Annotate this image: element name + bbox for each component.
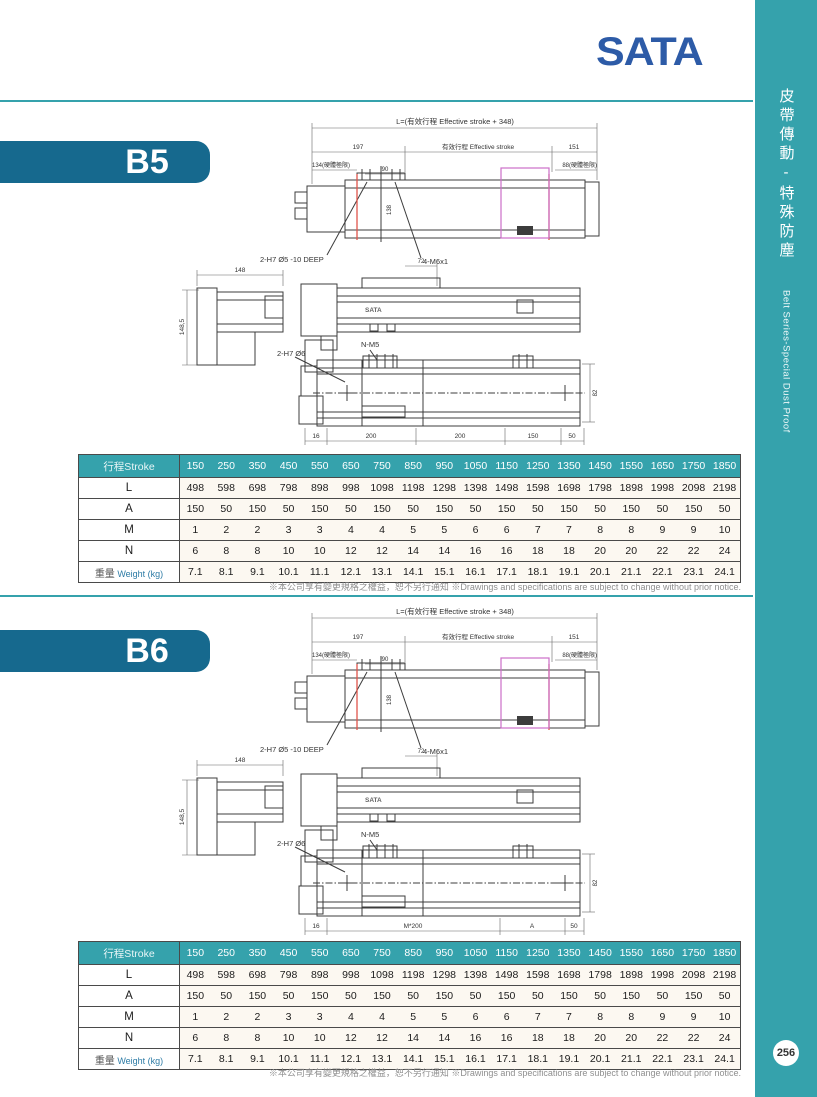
thread-label: 4-M6x1 — [423, 747, 448, 756]
technical-drawing-b6: L=(有效行程 Effective stroke + 348) 197 有效行程… — [165, 600, 635, 945]
table-cell: 150 — [616, 499, 647, 520]
top-divider — [0, 100, 753, 102]
table-cell: 150 — [678, 986, 709, 1007]
table-cell: 2198 — [709, 478, 740, 499]
table-cell: 2098 — [678, 965, 709, 986]
table-cell: 5 — [429, 1007, 460, 1028]
dim-197: 197 — [353, 634, 364, 641]
holes-top-label: 2-H7 Ø5 -10 DEEP — [260, 255, 324, 264]
body-logo-text: SATA — [365, 307, 382, 314]
table-cell: 16 — [491, 541, 522, 562]
table-cell: 150 — [180, 499, 211, 520]
table-cell: 498 — [180, 965, 211, 986]
table-cell: 50 — [335, 499, 366, 520]
table-cell: 6 — [460, 1007, 491, 1028]
disclaimer-note-b5: ※本公司享有變更規格之權益，恕不另行通知 ※Drawings and speci… — [78, 580, 741, 593]
table-cell: 1750 — [678, 942, 709, 965]
table-cell: 8 — [585, 520, 616, 541]
bottom-view — [299, 354, 585, 426]
dim-151: 151 — [569, 634, 580, 641]
table-cell: 1798 — [585, 478, 616, 499]
table-cell: 20 — [616, 1028, 647, 1049]
table-cell: 150 — [180, 986, 211, 1007]
technical-drawing-b5: L=(有效行程 Effective stroke + 348) 197 有效行程… — [165, 110, 635, 455]
dim-148: 148 — [235, 757, 246, 764]
table-cell: 18 — [553, 1028, 584, 1049]
table-cell: 1898 — [616, 965, 647, 986]
end-view-dims: 148 148,5 — [179, 757, 283, 855]
table-cell: 3 — [273, 1007, 304, 1028]
table-cell: 6 — [491, 1007, 522, 1028]
table-cell: 1150 — [491, 942, 522, 965]
table-cell: 22 — [647, 1028, 678, 1049]
table-cell: 16 — [460, 1028, 491, 1049]
table-cell: 24 — [709, 541, 740, 562]
table-cell: 4 — [366, 1007, 397, 1028]
table-cell: 6 — [180, 1028, 211, 1049]
table-cell: 850 — [398, 455, 429, 478]
dim-total-label: L=(有效行程 Effective stroke + 348) — [396, 606, 514, 616]
table-cell: 50 — [522, 499, 553, 520]
table-cell: 1250 — [522, 942, 553, 965]
dim-148: 148 — [235, 267, 246, 274]
end-view-dims: 148 148,5 — [179, 267, 283, 365]
section-divider — [0, 595, 753, 597]
table-cell: 950 — [429, 942, 460, 965]
table-cell: 14 — [398, 1028, 429, 1049]
table-cell: 20 — [585, 541, 616, 562]
spec-table-b6: 行程Stroke15025035045055065075085095010501… — [78, 941, 741, 1070]
table-cell: 22 — [678, 541, 709, 562]
table-cell: 9 — [647, 520, 678, 541]
table-cell: 10 — [273, 1028, 304, 1049]
table-cell: 6 — [460, 520, 491, 541]
table-cell: 2098 — [678, 478, 709, 499]
table-cell: 12 — [335, 541, 366, 562]
table-cell: 898 — [304, 965, 335, 986]
table-cell: 50 — [398, 986, 429, 1007]
dim-72: 72 — [418, 749, 425, 755]
table-cell: 1198 — [398, 965, 429, 986]
table-cell: 5 — [398, 520, 429, 541]
table-cell: 1 — [180, 520, 211, 541]
table-cell: 4 — [335, 520, 366, 541]
table-cell: 50 — [522, 986, 553, 1007]
table-cell: 250 — [211, 455, 242, 478]
thread-label: 4-M6x1 — [423, 257, 448, 266]
table-row: A150501505015050150501505015050150501505… — [79, 986, 741, 1007]
dim-138: 138 — [387, 204, 393, 215]
table-cell: A — [79, 499, 180, 520]
table-cell: 798 — [273, 965, 304, 986]
table-row: N688101012121414161618182020222224 — [79, 1028, 741, 1049]
table-cell: 150 — [491, 499, 522, 520]
table-cell: 10 — [709, 1007, 740, 1028]
table-cell: 1398 — [460, 965, 491, 986]
table-cell: 12 — [366, 541, 397, 562]
table-cell: 1050 — [460, 455, 491, 478]
table-cell: N — [79, 541, 180, 562]
table-cell: 50 — [585, 986, 616, 1007]
table-cell: 1050 — [460, 942, 491, 965]
bottom-dim-3: 50 — [570, 923, 578, 930]
dimension-lines: L=(有效行程 Effective stroke + 348) 197 有效行程… — [312, 116, 597, 215]
table-cell: 9 — [678, 520, 709, 541]
table-cell: 50 — [211, 986, 242, 1007]
table-cell: N — [79, 1028, 180, 1049]
table-cell: 1598 — [522, 478, 553, 499]
table-cell: 50 — [709, 499, 740, 520]
table-cell: 50 — [460, 986, 491, 1007]
table-cell: 8 — [211, 1028, 242, 1049]
table-cell: 150 — [491, 986, 522, 1007]
table-cell: 10 — [304, 1028, 335, 1049]
table-cell: 1850 — [709, 455, 740, 478]
table-cell: 9 — [678, 1007, 709, 1028]
bottom-view — [299, 844, 585, 916]
end-view — [197, 288, 283, 365]
table-cell: 698 — [242, 965, 273, 986]
table-cell: 1250 — [522, 455, 553, 478]
table-cell: 9 — [647, 1007, 678, 1028]
table-cell: 3 — [273, 520, 304, 541]
table-cell: 1298 — [429, 478, 460, 499]
table-cell: A — [79, 986, 180, 1007]
table-cell: 850 — [398, 942, 429, 965]
table-cell: 7 — [522, 520, 553, 541]
table-cell: 150 — [304, 499, 335, 520]
table-cell: 8 — [211, 541, 242, 562]
table-cell: 650 — [335, 942, 366, 965]
table-cell: 998 — [335, 965, 366, 986]
table-cell: 450 — [273, 455, 304, 478]
table-cell: 598 — [211, 478, 242, 499]
table-cell: 22 — [647, 541, 678, 562]
table-cell: 50 — [398, 499, 429, 520]
table-cell: 1198 — [398, 478, 429, 499]
table-cell: 1698 — [553, 478, 584, 499]
dim-82: 82 — [593, 389, 599, 396]
dim-134: 134(硬體極限) — [312, 651, 350, 659]
table-cell: 1298 — [429, 965, 460, 986]
sidebar-title-english: Belt Series-Special Dust Proof — [781, 290, 792, 433]
table-cell: 1350 — [553, 455, 584, 478]
table-cell: 22 — [678, 1028, 709, 1049]
table-cell: 行程Stroke — [79, 455, 180, 478]
table-cell: 1450 — [585, 942, 616, 965]
dim-90: 90 — [382, 167, 389, 173]
table-cell: 150 — [180, 942, 211, 965]
table-cell: 2 — [242, 1007, 273, 1028]
table-cell: 14 — [398, 541, 429, 562]
table-cell: 750 — [366, 455, 397, 478]
table-cell: 150 — [429, 499, 460, 520]
table-cell: 1398 — [460, 478, 491, 499]
dim-148-5: 148,5 — [179, 318, 186, 335]
table-cell: 5 — [429, 520, 460, 541]
table-cell: 1650 — [647, 942, 678, 965]
table-cell: 8 — [616, 520, 647, 541]
table-cell: 10 — [304, 541, 335, 562]
table-cell: 1998 — [647, 965, 678, 986]
table-cell: M — [79, 520, 180, 541]
dim-197: 197 — [353, 144, 364, 151]
table-cell: 150 — [366, 499, 397, 520]
dimension-lines: L=(有效行程 Effective stroke + 348) 197 有效行程… — [312, 606, 597, 705]
side-view — [295, 278, 580, 382]
table-cell: 150 — [429, 986, 460, 1007]
table-cell: 1 — [180, 1007, 211, 1028]
bottom-dim-4: 50 — [568, 433, 576, 440]
dim-151: 151 — [569, 144, 580, 151]
table-cell: 150 — [304, 986, 335, 1007]
table-cell: 1498 — [491, 965, 522, 986]
table-cell: 998 — [335, 478, 366, 499]
table-cell: 450 — [273, 942, 304, 965]
table-cell: 750 — [366, 942, 397, 965]
dim-88: 88(硬體極限) — [562, 651, 597, 659]
table-cell: 598 — [211, 965, 242, 986]
table-cell: 798 — [273, 478, 304, 499]
sata-logo: SATA — [596, 28, 716, 76]
page-number-badge: 256 — [773, 1040, 799, 1066]
table-cell: 3 — [304, 520, 335, 541]
holes-top-label: 2-H7 Ø5 -10 DEEP — [260, 745, 324, 754]
table-cell: 1550 — [616, 942, 647, 965]
table-row: L498598698798898998109811981298139814981… — [79, 478, 741, 499]
table-cell: 20 — [585, 1028, 616, 1049]
table-cell: 550 — [304, 455, 335, 478]
table-cell: 4 — [366, 520, 397, 541]
table-cell: 20 — [616, 541, 647, 562]
table-cell: 350 — [242, 455, 273, 478]
dim-total-label: L=(有效行程 Effective stroke + 348) — [396, 116, 514, 126]
table-cell: 50 — [647, 499, 678, 520]
table-cell: 18 — [522, 1028, 553, 1049]
table-cell: 350 — [242, 942, 273, 965]
table-cell: 150 — [616, 986, 647, 1007]
body-logo-text: SATA — [365, 797, 382, 804]
table-cell: 6 — [180, 541, 211, 562]
end-view — [197, 778, 283, 855]
dim-148-5: 148,5 — [179, 808, 186, 825]
table-cell: 18 — [522, 541, 553, 562]
bottom-dim-0: 16 — [312, 433, 320, 440]
table-row: A150501505015050150501505015050150501505… — [79, 499, 741, 520]
table-cell: 50 — [335, 986, 366, 1007]
table-cell: 1650 — [647, 455, 678, 478]
table-cell: 1698 — [553, 965, 584, 986]
table-cell: 250 — [211, 942, 242, 965]
table-cell: 1998 — [647, 478, 678, 499]
bottom-dim-1: 200 — [366, 433, 377, 440]
table-row: 行程Stroke15025035045055065075085095010501… — [79, 942, 741, 965]
table-cell: 1598 — [522, 965, 553, 986]
table-row: M1223344556677889910 — [79, 520, 741, 541]
holes-bottom-label: 2-H7 Ø6 — [277, 839, 305, 848]
table-cell: 898 — [304, 478, 335, 499]
bottom-dim-2: A — [530, 923, 535, 930]
table-cell: 8 — [242, 541, 273, 562]
table-cell: 1850 — [709, 942, 740, 965]
table-cell: 950 — [429, 455, 460, 478]
table-cell: 1150 — [491, 455, 522, 478]
table-cell: 7 — [522, 1007, 553, 1028]
table-cell: 50 — [585, 499, 616, 520]
table-cell: 14 — [429, 1028, 460, 1049]
bottom-dim-3: 150 — [528, 433, 539, 440]
table-cell: 8 — [585, 1007, 616, 1028]
dim-90: 90 — [382, 657, 389, 663]
table-cell: 50 — [647, 986, 678, 1007]
table-cell: 1498 — [491, 478, 522, 499]
table-cell: 2 — [211, 520, 242, 541]
table-cell: 5 — [398, 1007, 429, 1028]
table-cell: 10 — [273, 541, 304, 562]
table-cell: 2 — [211, 1007, 242, 1028]
table-cell: 150 — [553, 986, 584, 1007]
table-cell: 1750 — [678, 455, 709, 478]
table-cell: 3 — [304, 1007, 335, 1028]
table-cell: 1098 — [366, 478, 397, 499]
nm5-label: N-M5 — [361, 830, 379, 839]
table-cell: 10 — [709, 520, 740, 541]
side-view — [295, 768, 580, 872]
table-cell: 1350 — [553, 942, 584, 965]
table-cell: 150 — [242, 499, 273, 520]
table-cell: 行程Stroke — [79, 942, 180, 965]
spec-table-b5: 行程Stroke15025035045055065075085095010501… — [78, 454, 741, 583]
table-cell: 8 — [616, 1007, 647, 1028]
table-cell: 650 — [335, 455, 366, 478]
table-cell: 698 — [242, 478, 273, 499]
table-cell: 150 — [366, 986, 397, 1007]
holes-bottom-label: 2-H7 Ø6 — [277, 349, 305, 358]
dim-72: 72 — [418, 259, 425, 265]
table-cell: 6 — [491, 520, 522, 541]
catalog-page: SATA B5 B6 L=(有效行程 Effective stroke + 34… — [0, 0, 817, 1097]
table-cell: 14 — [429, 541, 460, 562]
nm5-label: N-M5 — [361, 340, 379, 349]
table-row: 行程Stroke15025035045055065075085095010501… — [79, 455, 741, 478]
bottom-view-dims: 82 16 M*200 A 50 — [305, 854, 599, 935]
disclaimer-note-b6: ※本公司享有變更規格之權益，恕不另行通知 ※Drawings and speci… — [78, 1066, 741, 1079]
table-cell: L — [79, 478, 180, 499]
table-cell: 1798 — [585, 965, 616, 986]
dim-82: 82 — [593, 879, 599, 886]
dim-88: 88(硬體極限) — [562, 161, 597, 169]
table-cell: 550 — [304, 942, 335, 965]
table-cell: 12 — [335, 1028, 366, 1049]
table-row: N688101012121414161618182020222224 — [79, 541, 741, 562]
table-cell: 50 — [273, 986, 304, 1007]
bottom-dim-1: M*200 — [404, 923, 423, 930]
table-cell: 150 — [553, 499, 584, 520]
table-cell: 7 — [553, 1007, 584, 1028]
table-row: M1223344556677889910 — [79, 1007, 741, 1028]
table-cell: 1898 — [616, 478, 647, 499]
bottom-dim-2: 200 — [455, 433, 466, 440]
table-cell: 2198 — [709, 965, 740, 986]
category-sidebar: 皮帶傳動-特殊防塵 Belt Series-Special Dust Proof… — [755, 0, 817, 1097]
table-cell: 16 — [491, 1028, 522, 1049]
table-cell: 1098 — [366, 965, 397, 986]
table-cell: 498 — [180, 478, 211, 499]
table-cell: 150 — [678, 499, 709, 520]
table-cell: 16 — [460, 541, 491, 562]
table-cell: 50 — [211, 499, 242, 520]
dim-effective-stroke: 有效行程 Effective stroke — [442, 632, 515, 641]
table-cell: 150 — [180, 455, 211, 478]
front-view — [295, 166, 599, 258]
table-cell: 8 — [242, 1028, 273, 1049]
dim-effective-stroke: 有效行程 Effective stroke — [442, 142, 515, 151]
table-cell: 24 — [709, 1028, 740, 1049]
table-cell: M — [79, 1007, 180, 1028]
table-cell: 7 — [553, 520, 584, 541]
table-cell: 50 — [273, 499, 304, 520]
table-cell: 12 — [366, 1028, 397, 1049]
bottom-view-dims: 82 16 200 200 150 50 — [305, 364, 599, 445]
bottom-dim-0: 16 — [312, 923, 320, 930]
table-cell: 1550 — [616, 455, 647, 478]
front-view — [295, 656, 599, 748]
table-cell: 50 — [460, 499, 491, 520]
sidebar-title-chinese: 皮帶傳動-特殊防塵 — [776, 88, 797, 261]
table-cell: 150 — [242, 986, 273, 1007]
table-cell: 4 — [335, 1007, 366, 1028]
dim-138: 138 — [387, 694, 393, 705]
table-row: L498598698798898998109811981298139814981… — [79, 965, 741, 986]
dim-134: 134(硬體極限) — [312, 161, 350, 169]
table-cell: L — [79, 965, 180, 986]
table-cell: 1450 — [585, 455, 616, 478]
table-cell: 2 — [242, 520, 273, 541]
table-cell: 18 — [553, 541, 584, 562]
table-cell: 50 — [709, 986, 740, 1007]
